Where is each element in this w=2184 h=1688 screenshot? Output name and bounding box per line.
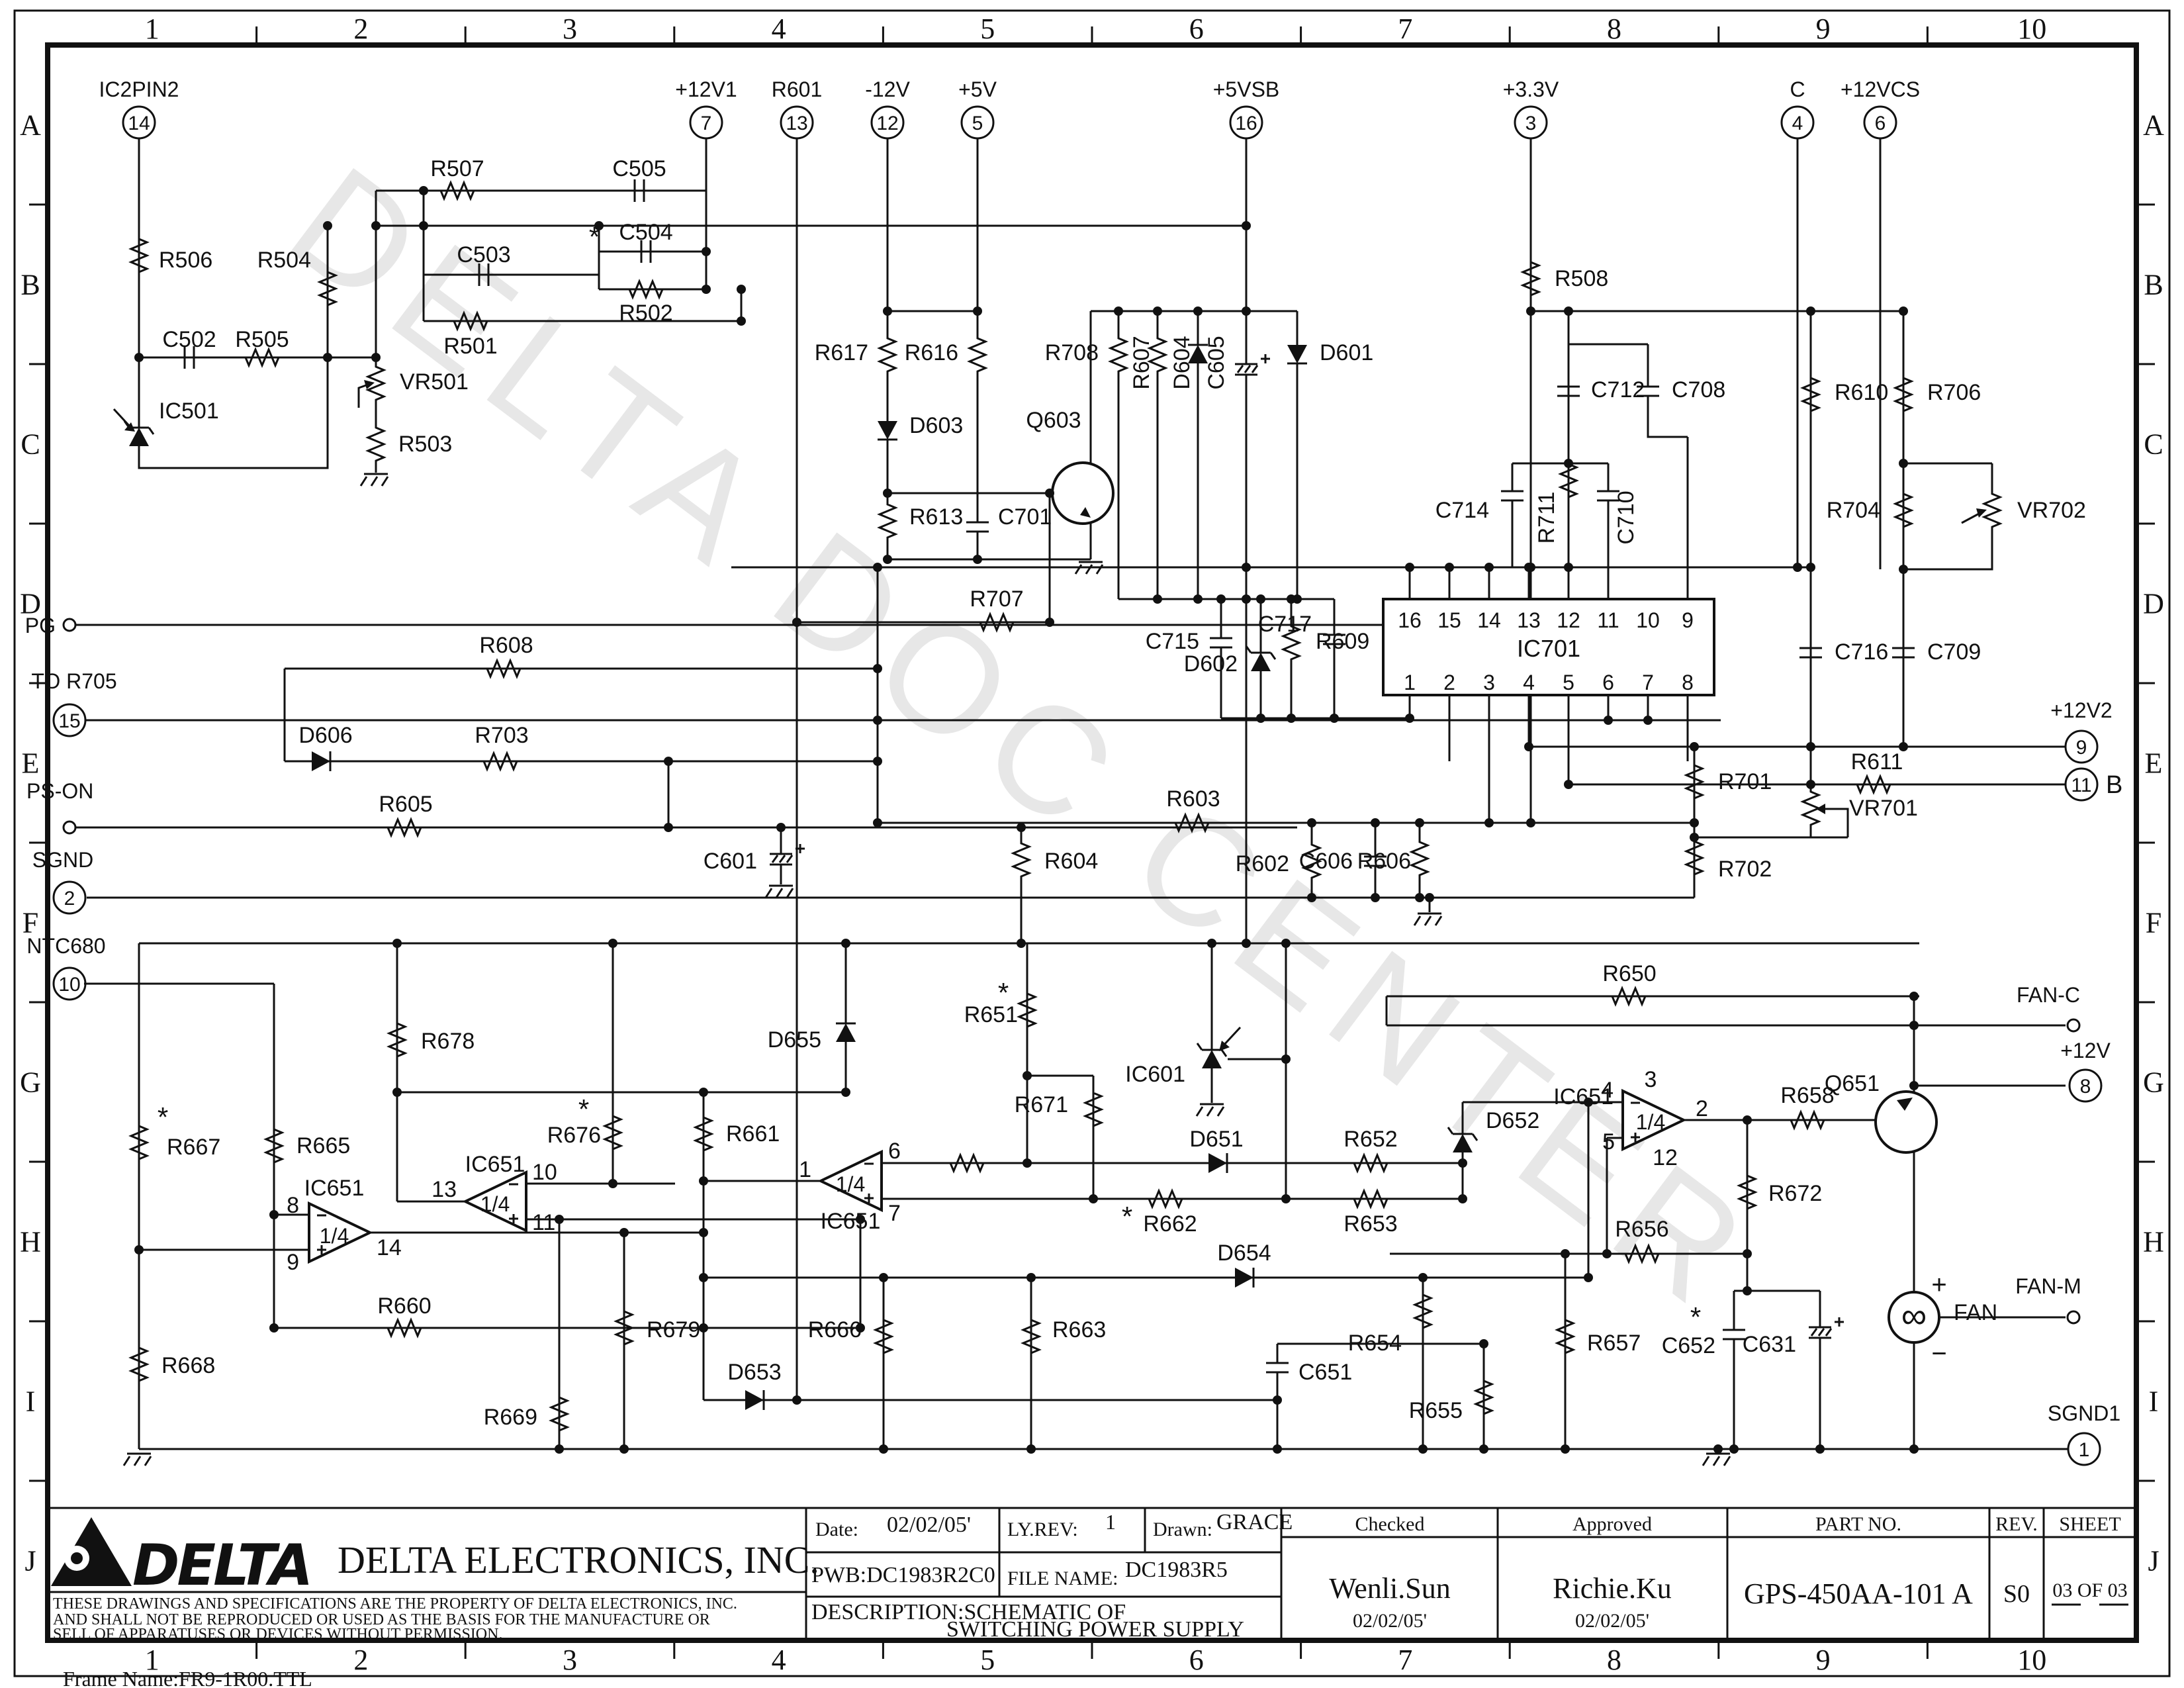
label-: * bbox=[158, 1102, 168, 1133]
label-12: 12 bbox=[1653, 1145, 1678, 1170]
ic701-pin-15: 15 bbox=[1437, 608, 1461, 632]
label-R610: R610 bbox=[1835, 380, 1888, 405]
label-R603: R603 bbox=[1166, 786, 1220, 812]
border-col-bottom-8: 8 bbox=[1607, 1644, 1621, 1676]
label-D651: D651 bbox=[1189, 1127, 1243, 1152]
disclaimer-line3: SELL OF APPARATUSES OR DEVICES WITHOUT P… bbox=[53, 1626, 502, 1643]
border-row-right-J: J bbox=[2148, 1545, 2159, 1577]
terminal-label-FAN-M: FAN-M bbox=[2015, 1274, 2081, 1298]
label-R609: R609 bbox=[1316, 629, 1369, 654]
ic701-pin-14: 14 bbox=[1477, 608, 1501, 632]
label-3: 3 bbox=[1645, 1067, 1657, 1092]
frame-name: Frame Name:FR9-1R00.TTL bbox=[63, 1667, 312, 1688]
ic701-pin-2: 2 bbox=[1443, 671, 1455, 694]
border-col-bottom-6: 6 bbox=[1189, 1644, 1204, 1676]
border-row-left-A: A bbox=[20, 109, 41, 142]
label-Q603: Q603 bbox=[1026, 408, 1081, 433]
border-row-left-F: F bbox=[23, 907, 38, 939]
approved-date: 02/02/05' bbox=[1575, 1610, 1649, 1632]
label-D602: D602 bbox=[1184, 651, 1238, 677]
ic701: IC701 16151413121110912345678 bbox=[1383, 599, 1714, 695]
border-col-top-6: 6 bbox=[1189, 13, 1204, 45]
label-C631: C631 bbox=[1743, 1332, 1796, 1357]
label-R671: R671 bbox=[1015, 1092, 1068, 1117]
border-row-right-C: C bbox=[2144, 428, 2163, 461]
label-R679: R679 bbox=[647, 1317, 700, 1342]
label-R704: R704 bbox=[1827, 498, 1880, 523]
label-C601: C601 bbox=[704, 849, 757, 874]
border-row-right-F: F bbox=[2146, 907, 2161, 939]
rev-value: S0 bbox=[2003, 1580, 2030, 1608]
label-R501: R501 bbox=[443, 334, 497, 359]
label-: * bbox=[1690, 1301, 1701, 1333]
label-R652: R652 bbox=[1343, 1127, 1397, 1152]
filename-label: FILE NAME: bbox=[1007, 1568, 1118, 1589]
border-row-right-B: B bbox=[2144, 269, 2163, 301]
terminal-label-PS-ON: PS-ON bbox=[26, 779, 93, 803]
label-4: 4 bbox=[1601, 1078, 1614, 1103]
label-D654: D654 bbox=[1217, 1241, 1271, 1266]
terminal-pin-9: 9 bbox=[2076, 737, 2087, 759]
terminal-label-IC2PIN2: IC2PIN2 bbox=[99, 77, 179, 101]
label-R503: R503 bbox=[398, 432, 452, 457]
terminal-pin-10: 10 bbox=[58, 974, 80, 996]
checked-date: 02/02/05' bbox=[1353, 1610, 1427, 1632]
label-R605: R605 bbox=[379, 792, 432, 817]
label-C606: C606 bbox=[1299, 849, 1353, 874]
label-C504: C504 bbox=[619, 220, 672, 245]
label-IC601: IC601 bbox=[1125, 1062, 1185, 1087]
label-: * bbox=[589, 221, 600, 252]
partno-label: PART NO. bbox=[1815, 1513, 1901, 1535]
label-R506: R506 bbox=[159, 248, 212, 273]
label-: − bbox=[1931, 1339, 1946, 1368]
label-R616: R616 bbox=[905, 340, 958, 365]
terminal-label-+12V2: +12V2 bbox=[2050, 698, 2112, 722]
label-R663: R663 bbox=[1052, 1317, 1106, 1342]
ic701-pin-6: 6 bbox=[1602, 671, 1614, 694]
label-: * bbox=[1122, 1201, 1132, 1232]
terminal-pin-6: 6 bbox=[1875, 113, 1886, 134]
filename-value: DC1983R5 bbox=[1125, 1558, 1228, 1582]
label-R655: R655 bbox=[1409, 1398, 1463, 1423]
terminal-pin-8: 8 bbox=[2080, 1076, 2091, 1098]
label-2: 2 bbox=[1696, 1096, 1708, 1121]
label-R669: R669 bbox=[484, 1405, 537, 1430]
ic701-pin-10: 10 bbox=[1636, 608, 1660, 632]
pwb-value: PWB:DC1983R2C0 bbox=[811, 1563, 995, 1587]
label-VR501: VR501 bbox=[400, 369, 469, 395]
border-row-right-I: I bbox=[2149, 1385, 2159, 1418]
rev-label: REV. bbox=[1995, 1513, 2038, 1535]
label-R711: R711 bbox=[1534, 492, 1559, 544]
label-: * bbox=[578, 1094, 589, 1125]
label-R505: R505 bbox=[235, 327, 289, 352]
border-col-top-3: 3 bbox=[563, 13, 577, 45]
border-col-bottom-4: 4 bbox=[772, 1644, 786, 1676]
label-5: 5 bbox=[1602, 1129, 1615, 1154]
ic701-pin-8: 8 bbox=[1682, 671, 1694, 694]
terminal-label-+5V: +5V bbox=[958, 77, 997, 101]
terminal-label-+3.3V: +3.3V bbox=[1503, 77, 1559, 101]
label-C708: C708 bbox=[1672, 377, 1725, 402]
ic701-pin-4: 4 bbox=[1523, 671, 1535, 694]
border-col-top-9: 9 bbox=[1816, 13, 1831, 45]
terminal-label-SGND1: SGND1 bbox=[2048, 1401, 2120, 1425]
terminal-pin-12: 12 bbox=[876, 113, 898, 134]
border-row-left-G: G bbox=[20, 1066, 41, 1099]
label-D601: D601 bbox=[1320, 340, 1373, 365]
terminal-label-FAN-C: FAN-C bbox=[2017, 983, 2080, 1007]
label-10: 10 bbox=[532, 1160, 557, 1185]
label-R676: R676 bbox=[547, 1123, 601, 1148]
sheet-label: SHEET bbox=[2059, 1513, 2120, 1535]
border-col-bottom-5: 5 bbox=[980, 1644, 995, 1676]
label-IC651: IC651 bbox=[821, 1209, 881, 1234]
label-VR701: VR701 bbox=[1849, 796, 1918, 821]
label-R672: R672 bbox=[1768, 1181, 1822, 1206]
ic701-pin-16: 16 bbox=[1398, 608, 1422, 632]
label-IC651: IC651 bbox=[465, 1152, 525, 1177]
label-R504: R504 bbox=[257, 248, 311, 273]
delta-logo-swirl-center bbox=[71, 1552, 83, 1564]
terminal-label-C: C bbox=[1790, 77, 1805, 101]
border-row-right-E: E bbox=[2145, 747, 2163, 780]
label-: + bbox=[1931, 1270, 1946, 1299]
ic701-pin-12: 12 bbox=[1557, 608, 1580, 632]
label-14: 14 bbox=[377, 1235, 402, 1260]
terminal-pin-4: 4 bbox=[1792, 113, 1803, 134]
date-label: Date: bbox=[815, 1519, 858, 1540]
checked-label: Checked bbox=[1355, 1513, 1425, 1535]
label-R502: R502 bbox=[619, 301, 672, 326]
terminal-pin-1: 1 bbox=[2079, 1439, 2090, 1461]
ic701-pin-3: 3 bbox=[1483, 671, 1495, 694]
label-VR702: VR702 bbox=[2017, 498, 2086, 523]
label-R702: R702 bbox=[1718, 857, 1772, 882]
terminal-label-TO R705: TO R705 bbox=[31, 669, 116, 693]
label-7: 7 bbox=[888, 1201, 901, 1226]
border-row-left-I: I bbox=[26, 1385, 36, 1418]
border-row-right-D: D bbox=[2143, 588, 2164, 620]
label-R653: R653 bbox=[1343, 1211, 1397, 1237]
border-row-left-B: B bbox=[21, 269, 40, 301]
label-C502: C502 bbox=[162, 327, 216, 352]
terminal-pin-16: 16 bbox=[1235, 113, 1257, 134]
border-row-left-D: D bbox=[20, 588, 41, 620]
label-14: 1/4 bbox=[836, 1172, 865, 1196]
terminal-label-+12V: +12V bbox=[2060, 1039, 2111, 1062]
label-D652: D652 bbox=[1486, 1108, 1539, 1133]
checked-name: Wenli.Sun bbox=[1329, 1572, 1450, 1605]
label-R661: R661 bbox=[726, 1121, 780, 1147]
border-row-left-C: C bbox=[21, 428, 40, 461]
label-R678: R678 bbox=[421, 1029, 475, 1054]
label-D603: D603 bbox=[909, 413, 963, 438]
label-R657: R657 bbox=[1587, 1331, 1641, 1356]
label-R701: R701 bbox=[1718, 769, 1772, 794]
border-col-top-2: 2 bbox=[353, 13, 368, 45]
label-C717: C717 bbox=[1258, 612, 1312, 637]
label-C651: C651 bbox=[1298, 1360, 1352, 1385]
label-R707: R707 bbox=[970, 586, 1023, 612]
label-R604: R604 bbox=[1044, 849, 1098, 874]
border-row-right-H: H bbox=[2143, 1226, 2164, 1258]
border-col-top-1: 1 bbox=[145, 13, 159, 45]
label-6: 6 bbox=[888, 1139, 901, 1164]
label-R613: R613 bbox=[909, 504, 963, 530]
label-C505: C505 bbox=[612, 156, 666, 181]
label-C716: C716 bbox=[1835, 639, 1888, 665]
label-IC651: IC651 bbox=[304, 1176, 365, 1201]
label-R706: R706 bbox=[1927, 380, 1981, 405]
label-R650: R650 bbox=[1602, 961, 1656, 986]
terminal-label-+12VCS: +12VCS bbox=[1841, 77, 1920, 101]
label-B: B bbox=[2106, 771, 2122, 799]
lyrev-label: LY.REV: bbox=[1007, 1519, 1078, 1540]
terminal-label-+12V1: +12V1 bbox=[675, 77, 737, 101]
company-name: DELTA ELECTRONICS, INC. bbox=[338, 1538, 819, 1581]
border-row-left-E: E bbox=[22, 747, 40, 780]
terminal-pin-7: 7 bbox=[701, 113, 712, 134]
label-C712: C712 bbox=[1591, 377, 1645, 402]
approved-name: Richie.Ku bbox=[1553, 1572, 1672, 1605]
terminal-label-+5VSB: +5VSB bbox=[1213, 77, 1280, 101]
label-R660: R660 bbox=[377, 1293, 431, 1319]
border-col-top-5: 5 bbox=[980, 13, 995, 45]
label-D653: D653 bbox=[727, 1360, 781, 1385]
terminal-pin-14: 14 bbox=[128, 113, 150, 134]
label-R608: R608 bbox=[479, 633, 533, 658]
description-line2: SWITCHING POWER SUPPLY bbox=[946, 1617, 1244, 1642]
border-col-bottom-10: 10 bbox=[2017, 1644, 2046, 1676]
border-row-left-H: H bbox=[20, 1226, 41, 1258]
label-1: 1 bbox=[799, 1157, 811, 1182]
border-row-right-A: A bbox=[2143, 109, 2164, 142]
label-11: 11 bbox=[532, 1210, 555, 1235]
label-R667: R667 bbox=[167, 1135, 220, 1160]
border-col-bottom-9: 9 bbox=[1816, 1644, 1831, 1676]
border-col-bottom-3: 3 bbox=[563, 1644, 577, 1676]
ic701-pin-1: 1 bbox=[1404, 671, 1416, 694]
terminal-label--12V: -12V bbox=[865, 77, 910, 101]
label-C605: C605 bbox=[1204, 336, 1229, 389]
label-R668: R668 bbox=[161, 1353, 215, 1378]
label-14: 1/4 bbox=[1636, 1110, 1665, 1134]
border-col-top-4: 4 bbox=[772, 13, 786, 45]
label-C714: C714 bbox=[1435, 498, 1489, 523]
lyrev-value: 1 bbox=[1105, 1510, 1116, 1534]
terminal-pin-15: 15 bbox=[58, 710, 80, 732]
label-C701: C701 bbox=[998, 504, 1052, 530]
delta-logo-text: DELTA bbox=[132, 1532, 310, 1599]
border-col-bottom-2: 2 bbox=[353, 1644, 368, 1676]
date-value: 02/02/05' bbox=[887, 1513, 971, 1537]
label-R602: R602 bbox=[1236, 851, 1289, 876]
terminal-pin-2: 2 bbox=[64, 888, 75, 910]
label-D604: D604 bbox=[1169, 336, 1195, 389]
label-R656: R656 bbox=[1615, 1217, 1668, 1242]
border-row-right-G: G bbox=[2143, 1066, 2164, 1099]
label-R665: R665 bbox=[296, 1133, 350, 1158]
label-R703: R703 bbox=[475, 723, 528, 748]
terminal-label-NTC680: NTC680 bbox=[26, 934, 105, 958]
label-R666: R666 bbox=[808, 1317, 862, 1342]
label-C503: C503 bbox=[457, 242, 510, 267]
border-col-bottom-7: 7 bbox=[1398, 1644, 1412, 1676]
terminal-pin-5: 5 bbox=[972, 113, 983, 134]
terminal-label-SGND: SGND bbox=[32, 848, 93, 872]
drawn-value: GRACE bbox=[1216, 1510, 1293, 1534]
label-R654: R654 bbox=[1348, 1331, 1402, 1356]
terminal-pin-11: 11 bbox=[2071, 774, 2091, 796]
label-R507: R507 bbox=[430, 156, 484, 181]
label-R611: R611 bbox=[1851, 749, 1903, 774]
label-9: 9 bbox=[287, 1250, 299, 1275]
sheet-value: 03 OF 03 bbox=[2052, 1579, 2127, 1601]
label-R662: R662 bbox=[1143, 1211, 1197, 1237]
schematic-sheet: DELTA DOC CENTER bbox=[0, 0, 2184, 1688]
label-: ∞ bbox=[1901, 1296, 1927, 1336]
terminal-label-R601: R601 bbox=[772, 77, 823, 101]
ic701-pin-13: 13 bbox=[1517, 608, 1541, 632]
drawn-label: Drawn: bbox=[1153, 1519, 1212, 1540]
schematic-canvas: DELTA DOC CENTER bbox=[0, 0, 2184, 1688]
label-IC501: IC501 bbox=[159, 399, 219, 424]
label-Q651: Q651 bbox=[1825, 1071, 1880, 1096]
label-FAN: FAN bbox=[1954, 1300, 1997, 1325]
label-8: 8 bbox=[287, 1193, 299, 1218]
ic701-pin-11: 11 bbox=[1597, 608, 1619, 632]
border-row-left-J: J bbox=[24, 1545, 36, 1577]
label-R508: R508 bbox=[1555, 266, 1608, 291]
label-R651: R651 bbox=[964, 1002, 1018, 1027]
label-R606: R606 bbox=[1357, 849, 1411, 874]
border-col-top-7: 7 bbox=[1398, 13, 1412, 45]
label-13: 13 bbox=[432, 1177, 457, 1202]
label-D655: D655 bbox=[768, 1027, 821, 1053]
label-C652: C652 bbox=[1662, 1333, 1715, 1358]
label-C710: C710 bbox=[1614, 491, 1639, 544]
label-C709: C709 bbox=[1927, 639, 1981, 665]
ic701-pin-7: 7 bbox=[1642, 671, 1654, 694]
terminal-pin-3: 3 bbox=[1525, 113, 1537, 134]
border-col-top-8: 8 bbox=[1607, 13, 1621, 45]
label-14: 1/4 bbox=[320, 1224, 349, 1248]
approved-label: Approved bbox=[1572, 1513, 1652, 1535]
border-col-top-10: 10 bbox=[2017, 13, 2046, 45]
ic701-label: IC701 bbox=[1517, 635, 1580, 662]
ic701-pin-9: 9 bbox=[1682, 608, 1694, 632]
label-R607: R607 bbox=[1129, 336, 1154, 389]
label-R617: R617 bbox=[815, 340, 868, 365]
terminal-pin-13: 13 bbox=[786, 113, 807, 134]
ic701-pin-5: 5 bbox=[1563, 671, 1574, 694]
partno-value: GPS-450AA-101 A bbox=[1744, 1577, 1973, 1610]
label-R708: R708 bbox=[1045, 340, 1099, 365]
label-C715: C715 bbox=[1146, 629, 1199, 654]
label-14: 1/4 bbox=[480, 1192, 510, 1216]
disclaimer-line1: THESE DRAWINGS AND SPECIFICATIONS ARE TH… bbox=[53, 1595, 737, 1613]
label-D606: D606 bbox=[298, 723, 352, 748]
